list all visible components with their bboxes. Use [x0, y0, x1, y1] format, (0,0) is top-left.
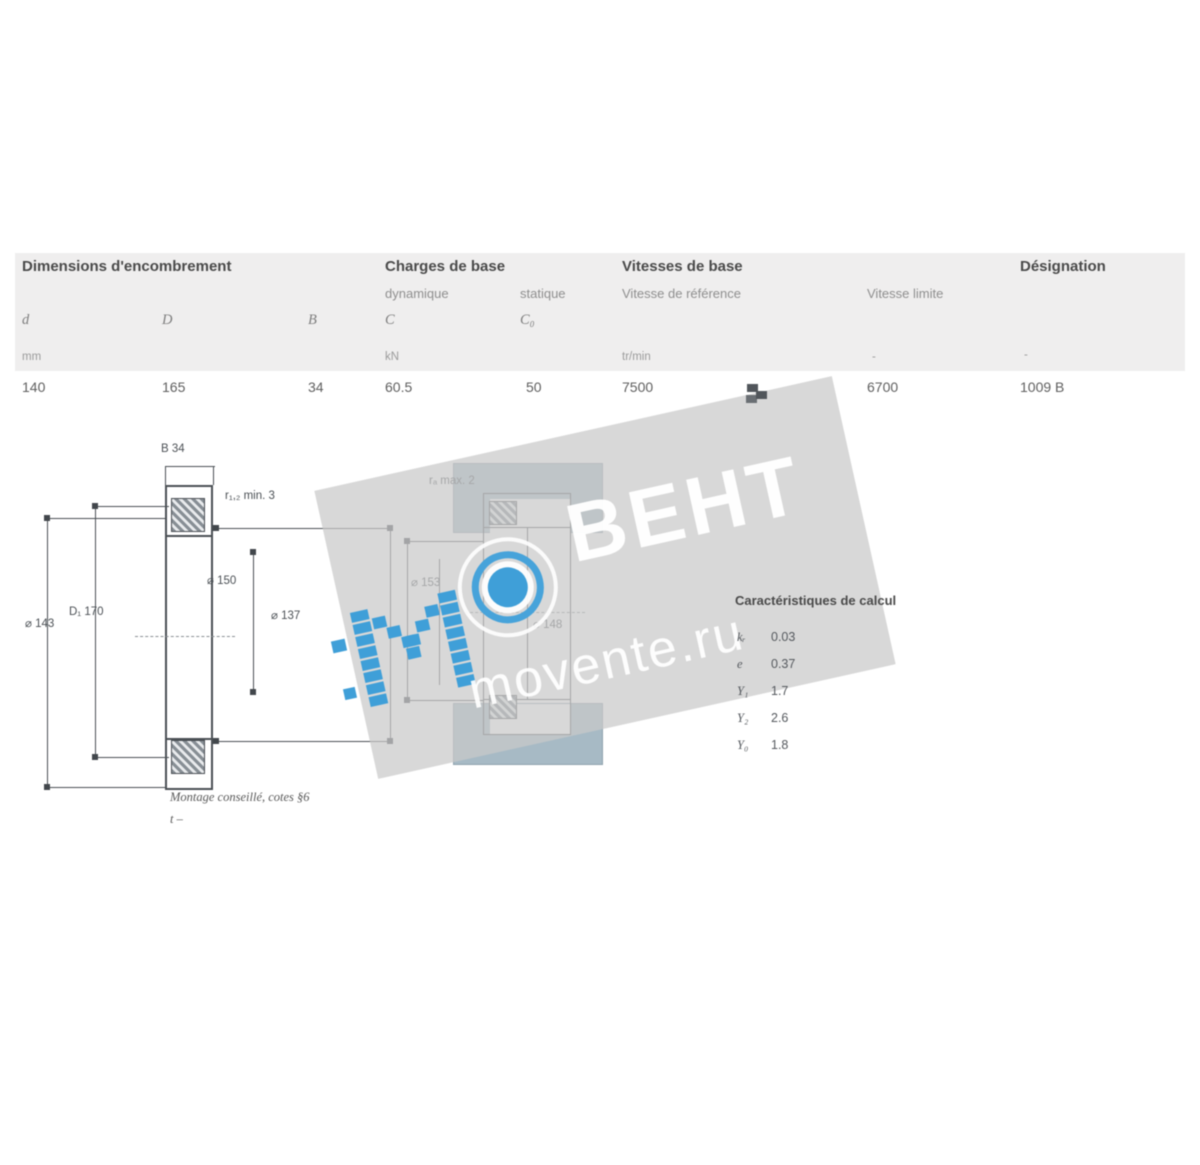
column-group-loads: Charges de base	[385, 258, 505, 275]
value-dynamic-C: 60.5	[385, 379, 412, 395]
symbol-C0: C₀	[520, 312, 535, 329]
value-width-B: 34	[308, 379, 324, 395]
calc-data-title: Caractéristiques de calcul	[735, 593, 896, 608]
calc-factor-value: 1.8	[771, 738, 788, 752]
dim-label-width: B 34	[161, 443, 185, 455]
unit-rpm: tr/min	[622, 351, 651, 363]
unit-kn: kN	[385, 351, 399, 363]
calc-factor-name: Y₂	[737, 711, 748, 725]
calc-factor-value: 2.6	[771, 711, 788, 725]
calc-factor-name: Y₁	[737, 684, 748, 698]
calc-row: Y₁ 1.7	[737, 684, 857, 699]
extension-line	[213, 466, 214, 485]
calc-row: e 0.37	[737, 657, 857, 672]
unit-dash-limit: -	[872, 351, 876, 363]
extension-line	[215, 741, 391, 742]
value-designation: 1009 B	[1020, 379, 1064, 395]
dim-node	[213, 738, 219, 744]
dim-node	[44, 515, 50, 521]
extension-line	[95, 506, 169, 507]
watermark-corner-mark	[747, 384, 758, 392]
watermark-target-ring	[465, 544, 551, 630]
calc-factor-name: Y₀	[737, 738, 748, 752]
value-bore-d: 140	[22, 379, 45, 395]
dim-node	[250, 549, 256, 555]
column-group-dimensions: Dimensions d'encombrement	[22, 258, 231, 275]
subheader-ref-speed: Vitesse de référence	[622, 286, 741, 301]
calc-row: kᵣ 0.03	[737, 630, 857, 645]
roller-top	[171, 498, 205, 532]
symbol-d: d	[22, 312, 29, 329]
dim-label-fillet: r₁,₂ min. 3	[225, 490, 275, 502]
subheader-static: statique	[520, 286, 566, 301]
roller-bottom	[171, 740, 205, 774]
calc-factor-name: kᵣ	[737, 630, 746, 644]
unit-dash-desig: -	[1024, 349, 1028, 361]
drawing-caption-footnote: t –	[170, 812, 183, 827]
unit-mm: mm	[22, 351, 41, 363]
drawing-caption: Montage conseillé, cotes §6	[170, 790, 310, 805]
dim-label-D1: D₁ 170	[69, 606, 104, 618]
dim-node	[92, 754, 98, 760]
value-static-C0: 50	[526, 379, 542, 395]
symbol-C: C	[385, 312, 395, 329]
dim-node	[92, 503, 98, 509]
calc-factor-value: 0.37	[771, 657, 795, 671]
subheader-limit-speed: Vitesse limite	[867, 286, 943, 301]
bearing-datasheet-page: Dimensions d'encombrement Charges de bas…	[0, 0, 1200, 1165]
dim-node	[44, 784, 50, 790]
extension-line	[47, 518, 165, 519]
dimension-line	[253, 552, 254, 692]
dimension-line	[95, 506, 96, 758]
column-group-designation: Désignation	[1020, 258, 1106, 275]
dim-node	[250, 689, 256, 695]
symbol-B: B	[308, 312, 317, 329]
calc-factor-value: 1.7	[771, 684, 788, 698]
dim-node	[213, 525, 219, 531]
extension-line	[95, 757, 169, 758]
dimension-line	[47, 518, 48, 788]
value-limit-speed: 6700	[867, 379, 898, 395]
calc-factor-value: 0.03	[771, 630, 795, 644]
calc-row: Y₀ 1.8	[737, 738, 857, 753]
dim-label-outer: ⌀ 143	[25, 616, 54, 630]
value-outer-D: 165	[162, 379, 185, 395]
extension-line	[47, 787, 165, 788]
calc-row: Y₂ 2.6	[737, 711, 857, 726]
watermark-target-core	[484, 563, 532, 611]
axis-centerline	[135, 636, 235, 637]
symbol-D: D	[162, 312, 172, 329]
column-group-speeds: Vitesses de base	[622, 258, 743, 275]
dimension-line	[165, 466, 215, 467]
value-ref-speed: 7500	[622, 379, 653, 395]
part-line	[165, 535, 213, 537]
subheader-dynamic: dynamique	[385, 286, 449, 301]
extension-line	[165, 466, 166, 485]
calc-factor-name: e	[737, 657, 743, 671]
watermark-brand-text: ВЕНТ	[558, 438, 812, 582]
dim-label-inner2: ⌀ 137	[271, 608, 300, 622]
dim-label-inner1: ⌀ 150	[207, 573, 236, 587]
